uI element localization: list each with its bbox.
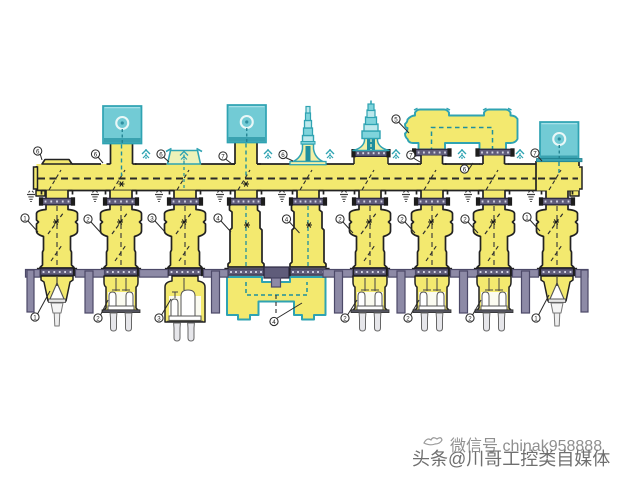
svg-text:4: 4 bbox=[272, 319, 276, 326]
svg-text:6: 6 bbox=[94, 151, 98, 158]
svg-text:2: 2 bbox=[400, 216, 404, 223]
svg-text:1: 1 bbox=[33, 314, 37, 321]
svg-text:头条@川哥工控类自媒体: 头条@川哥工控类自媒体 bbox=[412, 449, 610, 469]
svg-text:3: 3 bbox=[150, 215, 154, 222]
svg-text:1: 1 bbox=[23, 215, 27, 222]
svg-text:7: 7 bbox=[533, 150, 537, 157]
svg-text:2: 2 bbox=[463, 216, 467, 223]
svg-text:6: 6 bbox=[36, 148, 40, 155]
svg-text:6: 6 bbox=[281, 152, 285, 159]
svg-text:2: 2 bbox=[338, 216, 342, 223]
svg-text:2: 2 bbox=[96, 315, 100, 322]
svg-text:2: 2 bbox=[86, 216, 90, 223]
svg-text:3: 3 bbox=[157, 315, 161, 322]
svg-text:5: 5 bbox=[394, 116, 398, 123]
svg-text:6: 6 bbox=[159, 151, 163, 158]
svg-text:6: 6 bbox=[463, 166, 467, 173]
svg-text:7: 7 bbox=[221, 153, 225, 160]
svg-text:1: 1 bbox=[534, 315, 538, 322]
svg-text:7: 7 bbox=[409, 152, 413, 159]
svg-text:4: 4 bbox=[285, 216, 289, 223]
svg-text:2: 2 bbox=[406, 315, 410, 322]
svg-text:1: 1 bbox=[525, 214, 529, 221]
svg-text:4: 4 bbox=[216, 215, 220, 222]
svg-text:2: 2 bbox=[343, 315, 347, 322]
svg-text:2: 2 bbox=[468, 315, 472, 322]
